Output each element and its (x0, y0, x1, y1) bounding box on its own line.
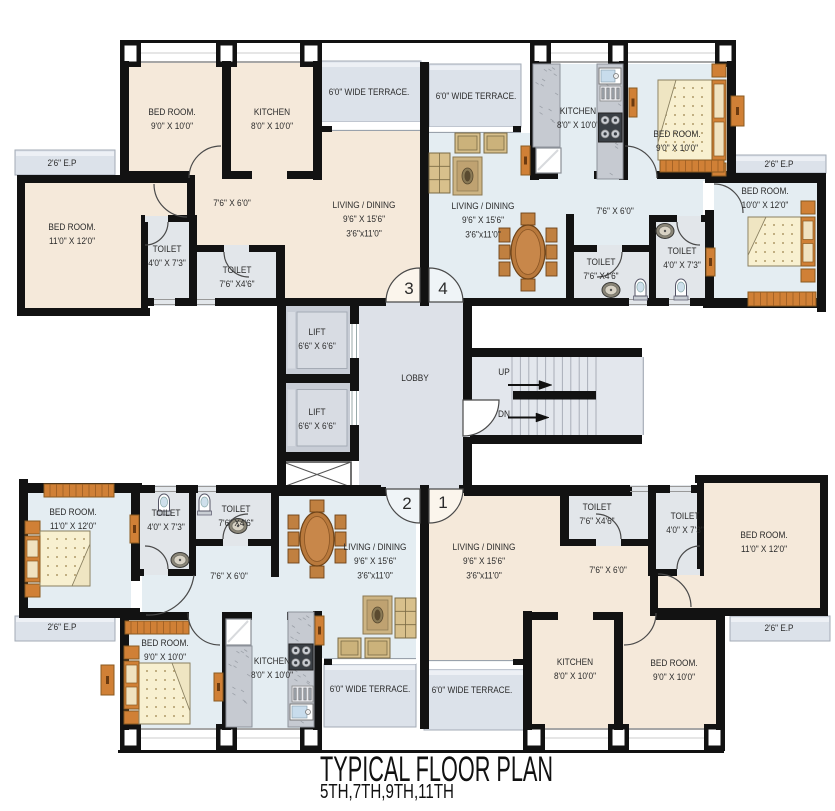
svg-text:TOILET: TOILET (587, 257, 617, 267)
svg-text:LIFT: LIFT (309, 407, 327, 417)
svg-text:8'0" X 10'0": 8'0" X 10'0" (251, 121, 293, 131)
svg-text:7'6" X4'6": 7'6" X4'6" (579, 516, 614, 526)
svg-text:TOILET: TOILET (223, 265, 253, 275)
svg-text:11'0" X 12'0": 11'0" X 12'0" (741, 544, 787, 554)
svg-text:BED ROOM.: BED ROOM. (740, 530, 787, 540)
svg-text:9'0" X 10'0": 9'0" X 10'0" (144, 652, 186, 662)
svg-text:4'0" X 7'3": 4'0" X 7'3" (148, 258, 186, 268)
svg-text:9'6" X 15'6": 9'6" X 15'6" (354, 556, 396, 566)
svg-text:8'0" X 10'0": 8'0" X 10'0" (557, 120, 599, 130)
svg-text:11'0" X 12'0": 11'0" X 12'0" (50, 521, 96, 531)
svg-text:6'0" WIDE TERRACE.: 6'0" WIDE TERRACE. (436, 91, 517, 101)
svg-text:BED ROOM.: BED ROOM. (48, 222, 95, 232)
svg-text:6'0" WIDE TERRACE.: 6'0" WIDE TERRACE. (330, 684, 411, 694)
svg-text:4'0" X 7'3": 4'0" X 7'3" (666, 525, 704, 535)
svg-text:2'6" E.P: 2'6" E.P (48, 158, 77, 168)
svg-text:BED ROOM.: BED ROOM. (141, 638, 188, 648)
svg-text:9'0" X 10'0": 9'0" X 10'0" (656, 143, 698, 153)
svg-text:6'0" WIDE TERRACE.: 6'0" WIDE TERRACE. (329, 87, 410, 97)
svg-text:7'6" X 6'0": 7'6" X 6'0" (589, 565, 627, 575)
svg-text:LOBBY: LOBBY (401, 373, 429, 383)
svg-text:3'6"x11'0": 3'6"x11'0" (466, 570, 502, 580)
svg-text:LIVING / DINING: LIVING / DINING (333, 200, 396, 210)
svg-text:LIVING / DINING: LIVING / DINING (452, 201, 515, 211)
svg-text:7'6" X 6'0": 7'6" X 6'0" (210, 571, 248, 581)
svg-text:2'6" E.P: 2'6" E.P (765, 159, 794, 169)
svg-text:3: 3 (404, 279, 413, 298)
svg-text:2: 2 (402, 494, 411, 513)
svg-text:11'0" X 12'0": 11'0" X 12'0" (49, 236, 95, 246)
svg-text:KITCHEN: KITCHEN (254, 656, 290, 666)
svg-text:4: 4 (438, 279, 447, 298)
svg-text:BED ROOM.: BED ROOM. (148, 107, 195, 117)
svg-text:7'6" X4'6": 7'6" X4'6" (218, 518, 253, 528)
svg-text:UP: UP (498, 367, 510, 377)
svg-text:7'6" X4'6": 7'6" X4'6" (583, 271, 618, 281)
svg-text:9'6" X 15'6": 9'6" X 15'6" (343, 214, 385, 224)
svg-text:BED ROOM.: BED ROOM. (650, 658, 697, 668)
svg-text:TOILET: TOILET (668, 246, 698, 256)
svg-text:8'0" X 10'0": 8'0" X 10'0" (251, 670, 293, 680)
svg-text:10'0" X 12'0": 10'0" X 12'0" (742, 200, 789, 210)
svg-text:KITCHEN: KITCHEN (560, 106, 596, 116)
svg-text:LIVING / DINING: LIVING / DINING (344, 542, 407, 552)
svg-text:KITCHEN: KITCHEN (254, 107, 290, 117)
svg-text:8'0" X 10'0": 8'0" X 10'0" (554, 671, 596, 681)
svg-text:5TH,7TH,9TH,11TH: 5TH,7TH,9TH,11TH (320, 780, 454, 803)
svg-text:2'6" E.P: 2'6" E.P (48, 622, 77, 632)
svg-text:LIFT: LIFT (309, 327, 327, 337)
svg-text:3'6"x11'0": 3'6"x11'0" (465, 229, 501, 239)
svg-text:6'0" WIDE TERRACE.: 6'0" WIDE TERRACE. (432, 685, 513, 695)
svg-text:9'6" X 15'6": 9'6" X 15'6" (462, 215, 504, 225)
svg-text:3'6"x11'0": 3'6"x11'0" (357, 570, 393, 580)
svg-text:KITCHEN: KITCHEN (557, 657, 593, 667)
svg-text:1: 1 (438, 493, 447, 512)
svg-text:6'6" X 6'6": 6'6" X 6'6" (298, 341, 336, 351)
svg-text:TOILET: TOILET (671, 511, 701, 521)
svg-text:4'0" X 7'3": 4'0" X 7'3" (663, 260, 701, 270)
svg-text:DN: DN (498, 409, 510, 419)
svg-text:6'6" X 6'6": 6'6" X 6'6" (298, 421, 336, 431)
svg-text:3'6"x11'0": 3'6"x11'0" (346, 228, 382, 238)
svg-text:TOILET: TOILET (153, 244, 183, 254)
svg-text:7'6" X4'6": 7'6" X4'6" (219, 279, 254, 289)
svg-text:TOILET: TOILET (222, 504, 252, 514)
svg-text:BED ROOM.: BED ROOM. (653, 129, 700, 139)
svg-text:LIVING / DINING: LIVING / DINING (453, 542, 516, 552)
svg-text:BED ROOM.: BED ROOM. (49, 507, 96, 517)
svg-text:7'6" X 6'0": 7'6" X 6'0" (596, 206, 634, 216)
svg-text:9'6" X 15'6": 9'6" X 15'6" (463, 556, 505, 566)
svg-text:7'6" X 6'0": 7'6" X 6'0" (213, 198, 251, 208)
svg-text:2'6" E.P: 2'6" E.P (765, 623, 794, 633)
svg-text:4'0" X 7'3": 4'0" X 7'3" (147, 522, 185, 532)
svg-text:9'0" X 10'0": 9'0" X 10'0" (151, 121, 193, 131)
svg-text:TOILET: TOILET (583, 502, 613, 512)
svg-text:BED ROOM.: BED ROOM. (741, 186, 788, 196)
svg-text:9'0" X 10'0": 9'0" X 10'0" (653, 672, 695, 682)
svg-text:TOILET: TOILET (152, 508, 182, 518)
